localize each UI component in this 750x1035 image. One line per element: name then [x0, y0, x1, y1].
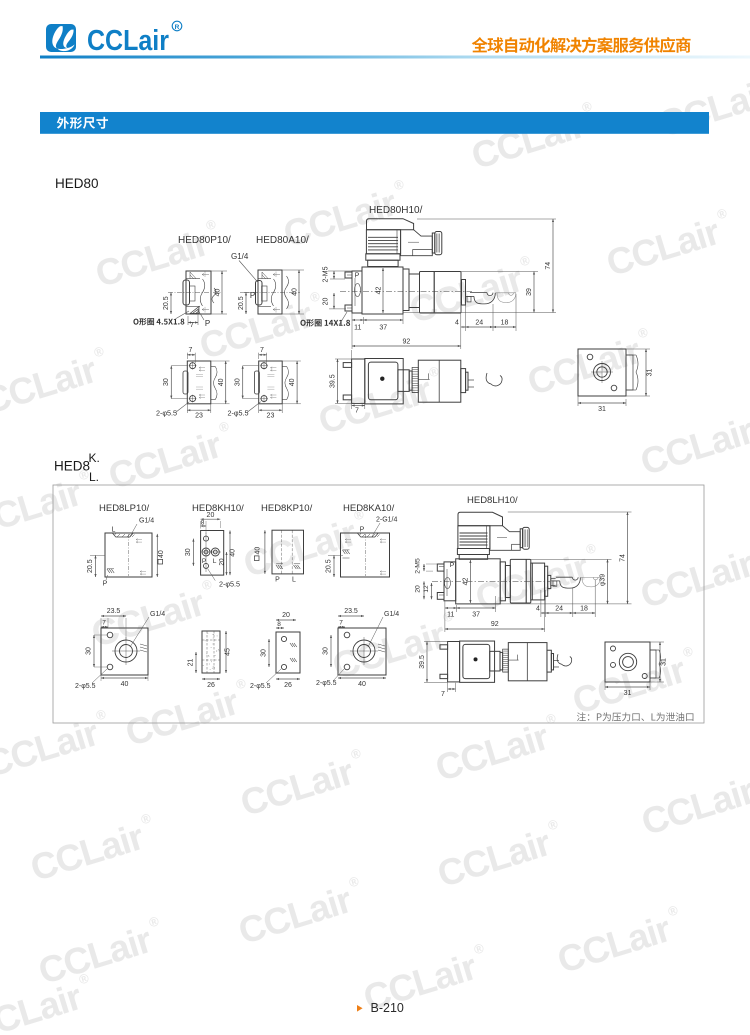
- svg-text:®: ®: [666, 902, 680, 919]
- svg-text:CCLair: CCLair: [568, 649, 691, 722]
- svg-text:2-G1/4: 2-G1/4: [376, 517, 398, 524]
- svg-text:31: 31: [624, 690, 632, 697]
- svg-text:7: 7: [190, 322, 194, 329]
- svg-text:G1/4: G1/4: [150, 611, 165, 618]
- svg-text:CCLair: CCLair: [636, 543, 750, 616]
- svg-text:G1/4: G1/4: [384, 611, 399, 618]
- svg-text:2-M5: 2-M5: [323, 266, 330, 282]
- svg-text:CCLair: CCLair: [0, 349, 102, 422]
- svg-text:18: 18: [501, 320, 509, 327]
- svg-text:2-φ5.5: 2-φ5.5: [316, 680, 337, 687]
- svg-text:40: 40: [289, 378, 296, 386]
- svg-text:74: 74: [620, 554, 627, 562]
- svg-text:HED80P10/: HED80P10/: [178, 235, 231, 246]
- svg-text:2-M5: 2-M5: [415, 558, 422, 574]
- svg-text:®: ®: [636, 324, 650, 341]
- svg-text:®: ®: [584, 540, 598, 557]
- svg-text:®: ®: [544, 710, 558, 727]
- svg-text:40: 40: [158, 550, 165, 558]
- svg-text:8: 8: [201, 519, 205, 526]
- svg-text:40: 40: [292, 288, 299, 296]
- svg-text:20.5: 20.5: [163, 296, 170, 310]
- svg-text:7: 7: [441, 691, 445, 698]
- svg-text:P: P: [360, 527, 365, 534]
- svg-text:37: 37: [472, 612, 480, 619]
- svg-text:23: 23: [195, 413, 203, 420]
- svg-text:30: 30: [261, 649, 268, 657]
- svg-text:CCLair: CCLair: [637, 770, 750, 843]
- svg-text:®: ®: [392, 176, 406, 193]
- svg-text:CCLair: CCLair: [91, 222, 214, 295]
- svg-text:G1/4: G1/4: [231, 252, 249, 261]
- svg-text:CCLair: CCLair: [234, 879, 357, 952]
- svg-text:®: ®: [94, 706, 108, 723]
- svg-text:20: 20: [218, 558, 225, 566]
- svg-text:G1/4: G1/4: [139, 518, 154, 525]
- svg-text:8: 8: [277, 621, 281, 628]
- svg-text:K.: K.: [89, 451, 100, 465]
- svg-text:CCLair: CCLair: [26, 816, 149, 889]
- svg-text:®: ®: [234, 675, 248, 692]
- svg-text:37: 37: [379, 325, 387, 332]
- svg-text:CCLair: CCLair: [553, 908, 676, 981]
- svg-text:HED80A10/: HED80A10/: [256, 235, 309, 246]
- svg-text:®: ®: [472, 940, 486, 957]
- svg-text:2-φ5.5: 2-φ5.5: [219, 580, 240, 589]
- svg-text:23.5: 23.5: [107, 608, 121, 615]
- svg-text:CCLair: CCLair: [433, 822, 556, 895]
- svg-text:11: 11: [354, 325, 361, 332]
- svg-text:20.5: 20.5: [325, 559, 332, 573]
- svg-text:92: 92: [403, 339, 411, 346]
- svg-text:®: ®: [200, 576, 214, 593]
- svg-text:CCLair: CCLair: [0, 976, 87, 1035]
- svg-text:P: P: [355, 273, 360, 280]
- svg-text:2-φ5.5: 2-φ5.5: [250, 683, 271, 690]
- svg-text:26: 26: [207, 682, 215, 689]
- svg-text:®: ®: [204, 216, 218, 233]
- svg-text:CCLair: CCLair: [602, 211, 725, 284]
- svg-text:40: 40: [254, 547, 261, 555]
- svg-text:CCLair: CCLair: [87, 25, 169, 57]
- svg-text:HED8KP10/: HED8KP10/: [261, 503, 313, 514]
- svg-text:20: 20: [415, 585, 422, 593]
- svg-text:40: 40: [215, 289, 222, 297]
- svg-text:CCLair: CCLair: [654, 72, 750, 145]
- svg-text:92: 92: [491, 621, 499, 628]
- svg-text:31: 31: [647, 369, 654, 377]
- svg-text:40: 40: [121, 681, 129, 688]
- svg-text:L: L: [112, 527, 116, 534]
- svg-text:30: 30: [235, 378, 242, 386]
- svg-text:®: ®: [518, 252, 532, 269]
- svg-text:®: ®: [546, 816, 560, 833]
- svg-text:4: 4: [536, 606, 540, 613]
- svg-text:L: L: [292, 577, 296, 584]
- svg-text:L: L: [213, 558, 217, 565]
- svg-text:40: 40: [218, 378, 225, 386]
- svg-text:®: ®: [139, 810, 153, 827]
- svg-text:HED80H10/: HED80H10/: [369, 205, 423, 216]
- svg-text:CCLair: CCLair: [0, 472, 87, 545]
- svg-text:HED80: HED80: [55, 176, 99, 191]
- svg-text:®: ®: [349, 745, 363, 762]
- svg-text:CCLair: CCLair: [328, 614, 451, 687]
- svg-text:24: 24: [475, 320, 483, 327]
- svg-text:2-φ5.5: 2-φ5.5: [75, 683, 96, 690]
- svg-text:4: 4: [455, 320, 459, 327]
- svg-text:45: 45: [225, 648, 232, 656]
- svg-text:39.5: 39.5: [330, 374, 337, 388]
- svg-text:7: 7: [355, 408, 359, 415]
- svg-text:HED8KA10/: HED8KA10/: [343, 503, 395, 514]
- svg-text:21: 21: [188, 659, 195, 667]
- svg-text:20: 20: [207, 512, 215, 519]
- svg-text:42: 42: [376, 287, 383, 295]
- svg-text:26: 26: [284, 682, 292, 689]
- svg-text:20.5: 20.5: [238, 296, 245, 310]
- svg-text:40: 40: [358, 681, 366, 688]
- svg-text:30: 30: [163, 378, 170, 386]
- svg-text:18: 18: [580, 606, 588, 613]
- svg-text:R: R: [175, 24, 180, 31]
- svg-text:39: 39: [526, 288, 533, 296]
- svg-text:®: ®: [347, 873, 361, 890]
- svg-text:P: P: [103, 581, 108, 588]
- svg-text:HED8: HED8: [54, 459, 90, 474]
- svg-text:7: 7: [260, 347, 264, 354]
- svg-text:40: 40: [230, 549, 237, 557]
- svg-text:P: P: [205, 319, 210, 328]
- svg-text:®: ®: [92, 343, 106, 360]
- svg-text:31: 31: [598, 406, 606, 413]
- svg-text:HED8LP10/: HED8LP10/: [99, 503, 150, 514]
- svg-text:CCLair: CCLair: [636, 410, 750, 483]
- svg-text:P: P: [450, 562, 455, 569]
- svg-text:HED8KH10/: HED8KH10/: [192, 503, 244, 514]
- svg-text:7: 7: [189, 347, 193, 354]
- svg-text:20.5: 20.5: [87, 559, 94, 573]
- svg-text:P: P: [202, 558, 206, 565]
- svg-text:20: 20: [323, 298, 330, 306]
- svg-text:42: 42: [463, 578, 470, 586]
- svg-text:B-210: B-210: [371, 1001, 404, 1015]
- svg-text:7: 7: [339, 620, 343, 627]
- svg-text:CCLair: CCLair: [121, 681, 244, 754]
- svg-text:7: 7: [102, 620, 106, 627]
- svg-text:φ39: φ39: [600, 574, 607, 586]
- svg-text:20: 20: [282, 612, 290, 619]
- svg-text:CCLair: CCLair: [104, 424, 227, 497]
- svg-text:30: 30: [86, 647, 93, 655]
- svg-text:30: 30: [323, 647, 330, 655]
- svg-text:30: 30: [185, 548, 192, 556]
- svg-text:CCLair: CCLair: [236, 751, 359, 824]
- svg-text:L.: L.: [89, 470, 99, 484]
- svg-text:74: 74: [545, 262, 552, 270]
- svg-text:2-φ5.5: 2-φ5.5: [156, 409, 177, 418]
- svg-text:®: ®: [147, 913, 161, 930]
- svg-text:®: ®: [308, 288, 322, 305]
- svg-text:23: 23: [267, 413, 275, 420]
- svg-text:P: P: [275, 577, 280, 584]
- svg-text:23.5: 23.5: [344, 608, 358, 615]
- svg-text:®: ®: [681, 643, 695, 660]
- svg-text:®: ®: [217, 418, 231, 435]
- svg-text:11: 11: [447, 612, 454, 619]
- svg-text:24: 24: [555, 606, 563, 613]
- svg-text:2-φ5.5: 2-φ5.5: [228, 409, 249, 418]
- svg-text:12: 12: [423, 585, 430, 593]
- svg-text:39.5: 39.5: [419, 655, 426, 669]
- svg-text:CCLair: CCLair: [431, 716, 554, 789]
- svg-text:®: ®: [715, 205, 729, 222]
- svg-text:CCLair: CCLair: [34, 919, 157, 992]
- svg-text:31: 31: [661, 658, 668, 666]
- svg-text:CCLair: CCLair: [523, 330, 646, 403]
- svg-text:HED8LH10/: HED8LH10/: [467, 495, 518, 506]
